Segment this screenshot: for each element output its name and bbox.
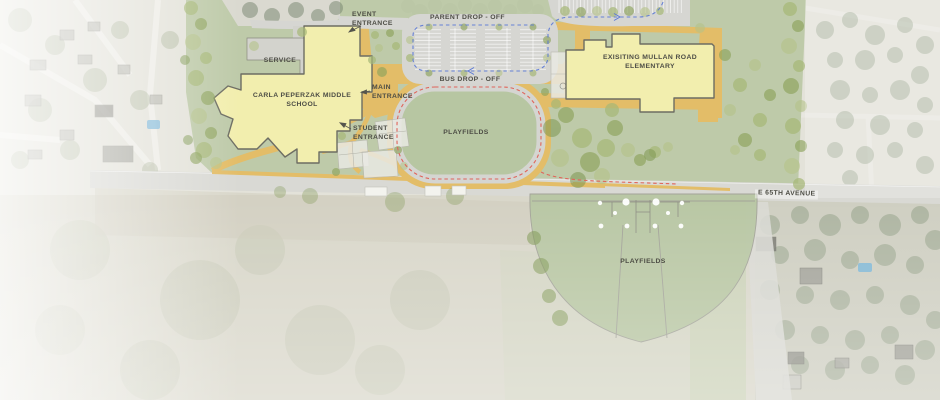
label-playfields-south: PLAYFIELDS bbox=[603, 258, 683, 267]
label-middle-school: CARLA PEPERZAK MIDDLE SCHOOL bbox=[252, 92, 352, 110]
label-event-entrance: EVENT ENTRANCE bbox=[352, 11, 398, 29]
label-bus-drop-off: BUS DROP - OFF bbox=[425, 76, 515, 85]
label-playfields-north: PLAYFIELDS bbox=[426, 129, 506, 138]
site-plan-canvas bbox=[0, 0, 940, 400]
label-e-65th-avenue: E 65TH AVENUE bbox=[755, 189, 819, 199]
site-plan-map: EVENT ENTRANCE PARENT DROP - OFF SERVICE… bbox=[0, 0, 940, 400]
label-service: SERVICE bbox=[258, 57, 302, 66]
label-elementary: EXISITING MULLAN ROAD ELEMENTARY bbox=[594, 54, 706, 72]
label-main-entrance: MAIN ENTRANCE bbox=[372, 84, 420, 102]
label-student-entrance: STUDENT ENTRANCE bbox=[353, 125, 405, 143]
label-parent-drop-off: PARENT DROP - OFF bbox=[420, 14, 515, 23]
